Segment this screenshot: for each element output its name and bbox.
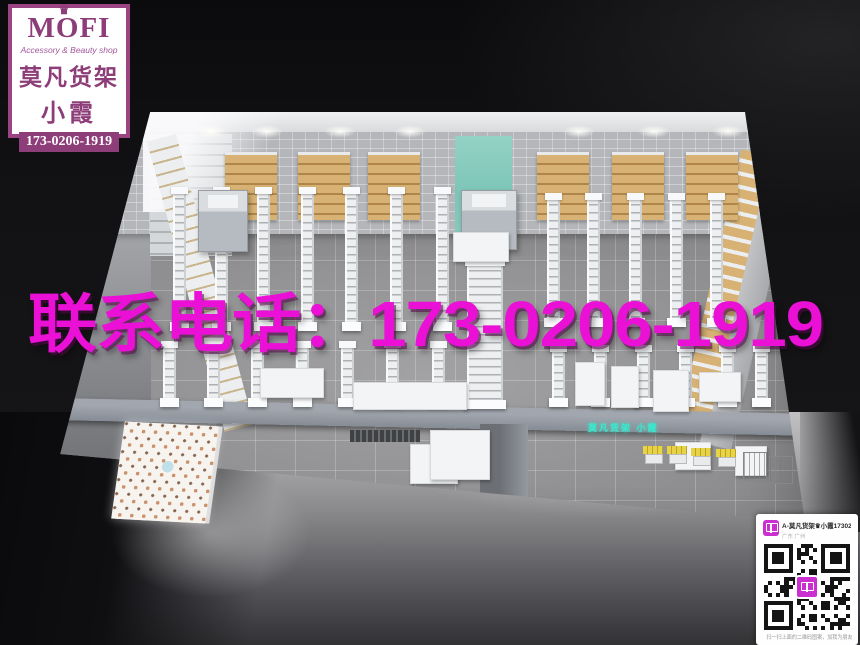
qr-module — [772, 618, 776, 622]
qr-contact-meta: A-莫凡货架♛小霞173020... 广东 广州 — [782, 520, 851, 540]
qr-module — [846, 544, 850, 548]
qr-module — [846, 556, 850, 560]
qr-contact-name: A-莫凡货架♛小霞173020... — [782, 520, 851, 530]
qr-module — [784, 593, 788, 597]
qr-module — [821, 581, 825, 585]
qr-module — [809, 544, 813, 548]
qr-module — [801, 552, 805, 556]
qr-module — [780, 618, 784, 622]
structural-column — [198, 190, 248, 252]
qr-module — [834, 577, 838, 581]
qr-module — [764, 552, 768, 556]
yellow-baskets — [667, 446, 687, 454]
qr-module — [834, 622, 838, 626]
qr-module — [830, 552, 834, 556]
qr-module — [821, 552, 825, 556]
qr-module — [780, 556, 784, 560]
qr-module — [784, 589, 788, 593]
wire-rack — [743, 452, 767, 480]
qr-module — [834, 605, 838, 609]
advert-render-canvas: 莫凡货架 小霞 ♛ MOFI Accessory & Beauty shop 莫… — [0, 0, 860, 645]
qr-module — [801, 544, 805, 548]
qr-module — [797, 548, 801, 552]
display-cabinet — [611, 366, 639, 408]
qr-module — [789, 569, 793, 573]
qr-module — [842, 622, 846, 626]
qr-module — [768, 593, 772, 597]
yellow-basket-stand — [643, 446, 663, 462]
qr-module — [797, 556, 801, 560]
qr-module — [789, 560, 793, 564]
qr-module — [776, 610, 780, 614]
qr-module — [834, 597, 838, 601]
qr-module — [805, 548, 809, 552]
qr-module — [825, 618, 829, 622]
qr-module — [846, 622, 850, 626]
qr-module — [830, 556, 834, 560]
qr-module — [776, 593, 780, 597]
qr-module — [764, 556, 768, 560]
qr-module — [797, 601, 801, 605]
qr-module — [821, 614, 825, 618]
qr-module — [764, 601, 768, 605]
qr-module — [834, 569, 838, 573]
qr-caption: 扫一扫上面的二维码图案，加我为朋友 — [767, 633, 848, 641]
qr-module — [809, 556, 813, 560]
qr-module — [821, 560, 825, 564]
qr-module — [821, 601, 825, 605]
downlight-glow — [712, 125, 744, 138]
qr-module — [838, 544, 842, 548]
display-cabinet — [575, 362, 605, 406]
qr-module — [776, 618, 780, 622]
display-cabinet — [699, 372, 741, 402]
qr-module — [838, 622, 842, 626]
qr-module — [801, 605, 805, 609]
qr-module — [789, 585, 793, 589]
qr-module — [838, 569, 842, 573]
qr-module — [805, 626, 809, 630]
qr-module — [776, 560, 780, 564]
storefront-neon-sign: 莫凡货架 小霞 — [588, 421, 659, 434]
qr-module — [813, 626, 817, 630]
qr-module — [784, 581, 788, 585]
qr-module — [789, 614, 793, 618]
qr-module — [772, 614, 776, 618]
qr-module — [801, 622, 805, 626]
qr-module — [780, 552, 784, 556]
qr-module — [809, 601, 813, 605]
promo-table — [353, 382, 467, 410]
qr-module — [797, 622, 801, 626]
qr-module — [801, 560, 805, 564]
qr-module — [776, 552, 780, 556]
qr-module — [821, 548, 825, 552]
qr-module — [789, 548, 793, 552]
downlight-glow — [394, 125, 426, 138]
qr-module — [846, 577, 850, 581]
qr-module — [830, 626, 834, 630]
hairstyle-poster — [111, 422, 219, 524]
qr-module — [784, 601, 788, 605]
crown-icon: ♛ — [58, 3, 71, 16]
qr-module — [764, 626, 768, 630]
qr-module — [830, 569, 834, 573]
qr-module — [805, 552, 809, 556]
qr-module — [834, 544, 838, 548]
promo-table — [260, 368, 324, 398]
qr-module — [764, 548, 768, 552]
qr-module — [789, 626, 793, 630]
qr-module — [784, 544, 788, 548]
qr-module — [842, 593, 846, 597]
qr-module — [821, 556, 825, 560]
downlight-glow — [563, 125, 595, 138]
qr-module — [821, 544, 825, 548]
qr-module — [821, 564, 825, 568]
qr-module — [842, 577, 846, 581]
qr-module — [768, 601, 772, 605]
qr-module — [789, 601, 793, 605]
qr-module — [776, 626, 780, 630]
qr-module — [842, 569, 846, 573]
qr-module — [789, 605, 793, 609]
qr-module — [830, 622, 834, 626]
qr-module — [838, 577, 842, 581]
qr-module — [842, 601, 846, 605]
brand-phone: 173-0206-1919 — [19, 132, 119, 152]
qr-module — [813, 614, 817, 618]
qr-module — [846, 564, 850, 568]
facade-panel — [430, 430, 490, 480]
qr-module — [825, 605, 829, 609]
display-cabinet — [653, 370, 689, 412]
qr-module — [780, 610, 784, 614]
qr-code — [764, 544, 850, 630]
qr-module — [825, 585, 829, 589]
qr-module — [838, 601, 842, 605]
downlight-glow — [324, 125, 356, 138]
qr-module — [846, 548, 850, 552]
qr-module — [789, 610, 793, 614]
qr-module — [764, 610, 768, 614]
column-sign — [472, 194, 507, 207]
basket-stand-base — [718, 457, 736, 467]
qr-module — [830, 589, 834, 593]
qr-module — [784, 577, 788, 581]
qr-module — [772, 560, 776, 564]
qr-module — [797, 552, 801, 556]
qr-module — [813, 569, 817, 573]
qr-module — [813, 605, 817, 609]
qr-module — [789, 544, 793, 548]
qr-module — [772, 544, 776, 548]
contact-watermark: 联系电话：173-0206-1919 — [28, 292, 823, 356]
qr-module — [838, 560, 842, 564]
brand-logo-text: ♛ MOFI — [28, 14, 111, 43]
qr-module — [764, 605, 768, 609]
qr-module — [768, 544, 772, 548]
qr-module — [834, 585, 838, 589]
qr-module — [789, 564, 793, 568]
qr-module — [830, 544, 834, 548]
qr-module — [809, 569, 813, 573]
brand-tagline: Accessory & Beauty shop — [21, 45, 118, 55]
qr-module — [821, 569, 825, 573]
qr-module — [838, 552, 842, 556]
qr-module — [776, 601, 780, 605]
yellow-baskets — [716, 449, 736, 457]
qr-module — [838, 597, 842, 601]
qr-module — [789, 552, 793, 556]
brand-card: ♛ MOFI Accessory & Beauty shop 莫凡货架 小霞 1… — [8, 4, 130, 138]
qr-module — [768, 569, 772, 573]
wechat-app-icon — [763, 520, 779, 536]
basket-stand-base — [669, 454, 687, 464]
qr-module — [825, 589, 829, 593]
qr-module — [764, 589, 768, 593]
qr-contact-location: 广东 广州 — [782, 532, 851, 540]
qr-module — [772, 552, 776, 556]
brand-cn-name: 莫凡货架 — [19, 58, 119, 92]
qr-module — [776, 544, 780, 548]
qr-module — [780, 560, 784, 564]
qr-module — [801, 569, 805, 573]
qr-module — [772, 556, 776, 560]
qr-module — [780, 614, 784, 618]
qr-module — [838, 556, 842, 560]
qr-module — [764, 618, 768, 622]
qr-module — [768, 626, 772, 630]
qr-module — [825, 601, 829, 605]
qr-module — [780, 544, 784, 548]
wall-shelf-wood — [537, 152, 589, 220]
qr-card-header: A-莫凡货架♛小霞173020... 广东 广州 — [763, 520, 851, 540]
qr-module — [764, 622, 768, 626]
qr-module — [834, 556, 838, 560]
yellow-basket-stand — [667, 446, 687, 462]
qr-module — [834, 614, 838, 618]
qr-module — [838, 626, 842, 630]
downlight-glow — [195, 125, 227, 138]
qr-module — [821, 605, 825, 609]
basket-stand-base — [645, 454, 663, 464]
qr-module — [776, 581, 780, 585]
qr-module — [764, 569, 768, 573]
qr-module — [764, 544, 768, 548]
qr-module — [789, 556, 793, 560]
qr-module — [764, 585, 768, 589]
qr-contact-card: A-莫凡货架♛小霞173020... 广东 广州 扫一扫上面的二维码图案，加我为… — [756, 514, 858, 645]
facade-vent — [350, 430, 420, 442]
qr-module — [846, 560, 850, 564]
qr-module — [768, 581, 772, 585]
qr-module — [830, 585, 834, 589]
yellow-baskets — [691, 448, 711, 456]
qr-module — [764, 560, 768, 564]
downlight-glow — [638, 125, 670, 138]
qr-center-logo-icon — [795, 575, 819, 599]
qr-module — [825, 544, 829, 548]
qr-module — [772, 569, 776, 573]
yellow-basket-stand — [716, 449, 736, 465]
qr-module — [801, 614, 805, 618]
qr-module — [834, 552, 838, 556]
qr-module — [780, 569, 784, 573]
qr-module — [789, 618, 793, 622]
qr-module — [784, 626, 788, 630]
qr-module — [846, 552, 850, 556]
qr-module — [846, 569, 850, 573]
qr-module — [776, 569, 780, 573]
qr-module — [789, 577, 793, 581]
qr-module — [838, 581, 842, 585]
qr-module — [780, 626, 784, 630]
qr-module — [813, 560, 817, 564]
brand-contact-name: 小霞 — [41, 93, 97, 128]
qr-module — [834, 560, 838, 564]
qr-module — [772, 601, 776, 605]
qr-module — [772, 610, 776, 614]
downlight-glow — [251, 125, 283, 138]
qr-module — [842, 597, 846, 601]
qr-module — [830, 593, 834, 597]
qr-module — [780, 589, 784, 593]
qr-module — [809, 618, 813, 622]
qr-module — [846, 589, 850, 593]
cashier-counter — [453, 232, 509, 262]
qr-module — [813, 548, 817, 552]
qr-module — [821, 626, 825, 630]
basket-stand-base — [693, 456, 711, 466]
column-sign — [208, 195, 239, 208]
qr-module — [813, 618, 817, 622]
wire-rack — [769, 456, 793, 484]
qr-module — [797, 618, 801, 622]
qr-module — [809, 614, 813, 618]
yellow-basket-stand — [691, 448, 711, 464]
qr-module — [764, 614, 768, 618]
qr-module — [780, 585, 784, 589]
qr-module — [789, 622, 793, 626]
qr-module — [842, 544, 846, 548]
yellow-baskets — [643, 446, 663, 454]
qr-module — [838, 618, 842, 622]
qr-module — [776, 614, 780, 618]
qr-module — [784, 585, 788, 589]
qr-module — [764, 564, 768, 568]
qr-module — [825, 569, 829, 573]
qr-module — [842, 618, 846, 622]
qr-module — [830, 581, 834, 585]
qr-module — [805, 544, 809, 548]
qr-module — [776, 556, 780, 560]
qr-module — [846, 605, 850, 609]
qr-module — [846, 597, 850, 601]
qr-module — [821, 593, 825, 597]
qr-module — [830, 560, 834, 564]
qr-module — [830, 577, 834, 581]
qr-module — [784, 569, 788, 573]
qr-module — [772, 626, 776, 630]
qr-module — [780, 601, 784, 605]
qr-module — [846, 614, 850, 618]
